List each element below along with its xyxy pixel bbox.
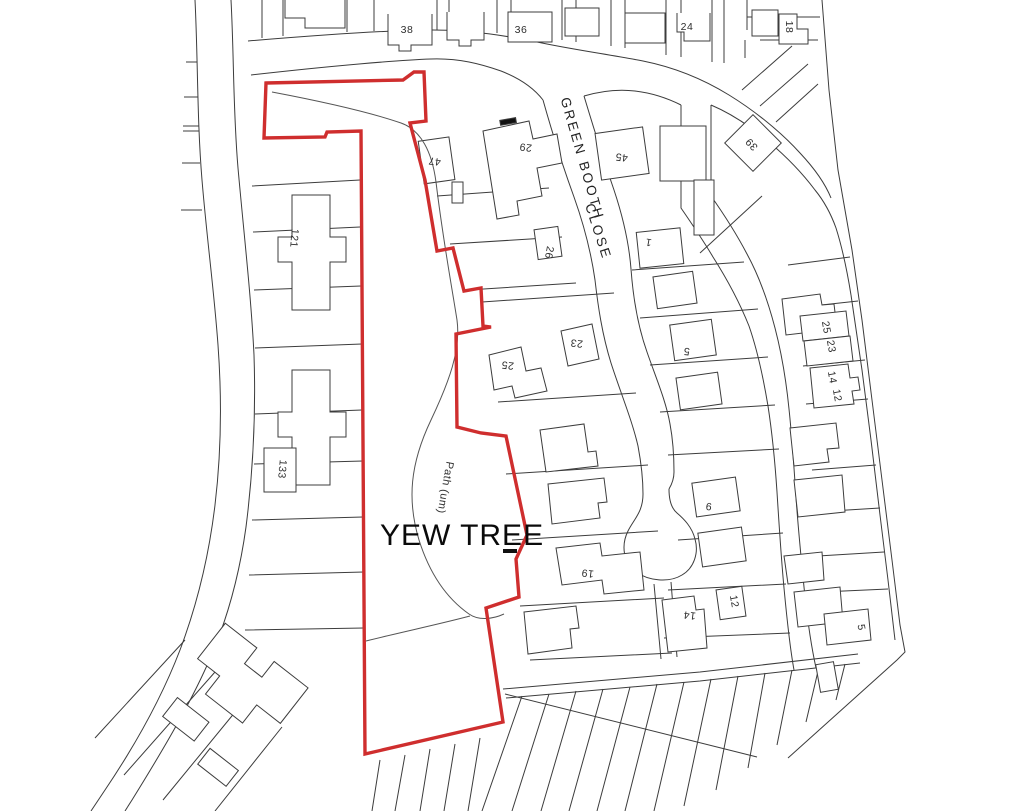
house-number-label: 133 [275,459,289,479]
site-plan-map: 3836241847294539261252352523141291914125… [0,0,1024,811]
house-number-label: 26 [542,245,556,260]
path-label: Path (um) [434,460,455,514]
house-number-label: 38 [401,24,414,36]
house-number-label: 25 [501,358,515,371]
site-name-label: YEW TREE [380,519,544,552]
house-number-label: 12 [727,594,741,609]
house-number-label: 14 [825,370,839,385]
house-number-label: 45 [615,150,629,163]
house-number-label: 12 [830,388,844,403]
house-number-label: 14 [683,608,697,621]
map-canvas: 3836241847294539261252352523141291914125… [0,0,1024,811]
house-number-label: 24 [681,21,694,33]
house-number-label: 18 [783,21,795,34]
house-number-label: 36 [515,24,528,36]
street-name-label: CLOSE [582,202,614,262]
house-number-label: 29 [519,140,533,153]
house-number-label: 23 [570,336,584,349]
house-number-label: 25 [819,320,833,335]
house-number-label: 121 [287,228,301,248]
house-number-label: 19 [581,566,595,579]
house-number-label: 23 [824,339,838,354]
footpath-line [272,92,504,641]
house-number-label: 47 [428,154,442,167]
